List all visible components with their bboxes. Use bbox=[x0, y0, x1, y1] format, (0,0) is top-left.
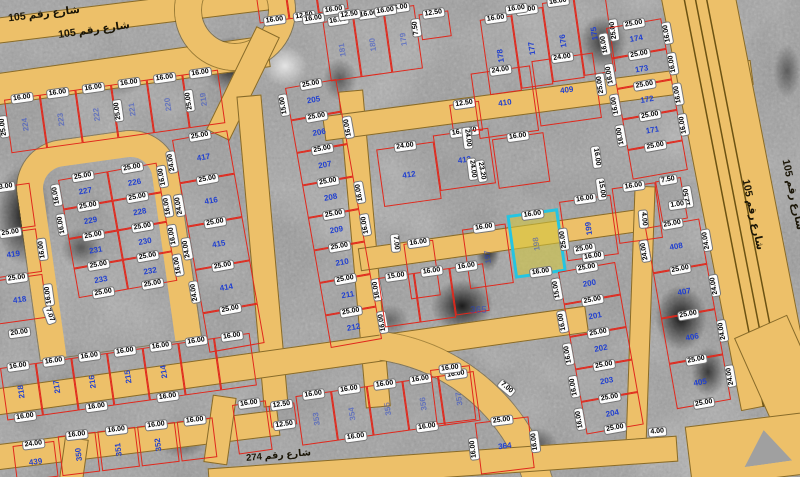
parcel-number: 409 bbox=[533, 54, 601, 126]
parcel-412[interactable]: 41224.00 bbox=[376, 141, 442, 207]
parcel[interactable]: 16.00 bbox=[430, 365, 476, 424]
dimension-label: 16.00 bbox=[622, 180, 646, 193]
parcel-number: 198 bbox=[510, 211, 564, 275]
parcel[interactable]: 16.00 bbox=[232, 400, 273, 454]
parcel-418[interactable]: 41825.0016.00 bbox=[0, 274, 48, 325]
parcel-number: 223 bbox=[41, 91, 82, 147]
dimension-label: 7.00 bbox=[390, 233, 402, 252]
parcel-352[interactable]: 35216.00 bbox=[137, 422, 180, 466]
parcel-number: 412 bbox=[377, 143, 440, 206]
parcel-number: 215 bbox=[108, 349, 149, 404]
dimension-label: 4.00 bbox=[648, 426, 667, 438]
parcel[interactable]: 16.00 bbox=[177, 417, 218, 461]
parcel-number: 365 bbox=[470, 305, 487, 316]
parcel-364[interactable]: 36425.0016.0016.00 bbox=[475, 416, 535, 474]
parcel[interactable]: 16.00 bbox=[214, 333, 257, 390]
parcel-409[interactable]: 40924.0025.00 bbox=[531, 52, 602, 126]
parcel-number: 224 bbox=[5, 96, 46, 152]
dimension-label: 12.50 bbox=[422, 7, 446, 20]
parcel-number: 218 bbox=[1, 364, 42, 419]
parcel-419[interactable]: 41925.0016.00 bbox=[0, 228, 42, 279]
dimension-label: 16.00 bbox=[406, 236, 430, 249]
parcel-351[interactable]: 35116.00 bbox=[97, 427, 140, 471]
vegetation-shadow bbox=[770, 36, 800, 106]
dimension-label: 7.50 bbox=[410, 18, 422, 38]
dimension-label: 16.00 bbox=[184, 335, 208, 348]
dimension-label: 4.00 bbox=[638, 209, 650, 228]
dimension-label: 23.00 bbox=[0, 181, 16, 194]
parcel[interactable]: 12.5012.50 bbox=[268, 402, 297, 427]
dimension-label: 15.00 bbox=[384, 270, 408, 283]
dimension-label: 7.50 bbox=[658, 174, 678, 187]
dimension-label: 16.00 bbox=[420, 265, 444, 278]
parcel-350[interactable]: 35016.00 bbox=[58, 432, 101, 476]
parcel-number: 214 bbox=[144, 344, 185, 399]
dimension-label: 16.00 bbox=[237, 397, 261, 410]
parcel-number: 364 bbox=[476, 417, 534, 473]
dimension-label: 16.00 bbox=[438, 362, 462, 375]
dimension-label: 16.00 bbox=[183, 414, 207, 427]
dimension-label: 16.00 bbox=[220, 330, 244, 343]
parcel[interactable]: 12.507.50 bbox=[418, 10, 451, 40]
selected-parcel[interactable]: 19816.0025.0016.00 bbox=[506, 208, 566, 279]
dimension-label: 12.50 bbox=[452, 97, 476, 110]
dimension-label: 16.00 bbox=[506, 130, 530, 143]
dimension-label: 12.50 bbox=[270, 399, 294, 412]
parcel-number: 222 bbox=[76, 86, 117, 142]
parcel-439[interactable]: 43924.00 bbox=[12, 441, 58, 477]
dimension-label: 16.00 bbox=[454, 260, 478, 273]
parcel-405[interactable]: 40525.0024.0025.00 bbox=[669, 354, 731, 409]
parcel-number: 220 bbox=[148, 76, 189, 132]
parcel[interactable]: 16.00 bbox=[492, 132, 550, 189]
parcel-number: 217 bbox=[37, 359, 78, 414]
parcel-number: 410 bbox=[472, 66, 538, 137]
cadastral-map: شارع رقم 105 شارع رقم 105 شارع رقم 105 ش… bbox=[0, 0, 800, 477]
parcel-number: 216 bbox=[72, 354, 113, 409]
parcel-410[interactable]: 41024.00 bbox=[471, 65, 540, 139]
